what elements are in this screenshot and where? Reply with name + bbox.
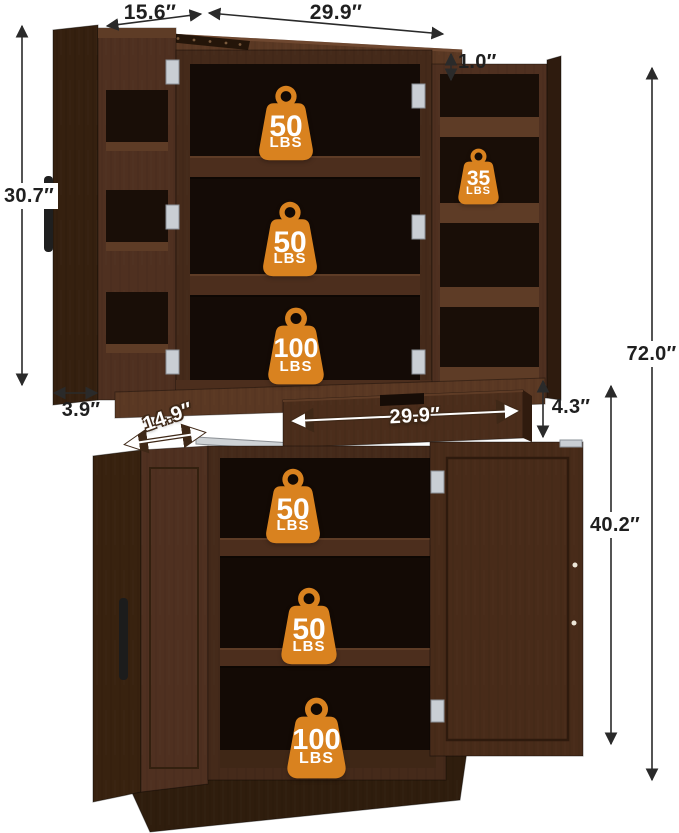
weight-badge-upper-shelf-3: 100 LBS [256, 306, 336, 386]
dimension-label-lower-height: 40.2″ [586, 512, 644, 538]
upper-right-door [432, 56, 561, 400]
dimension-label-drawer-height: 4.3″ [541, 396, 601, 418]
weight-unit: LBS [450, 186, 507, 197]
weight-badge-lower-shelf-3: 100 LBS [274, 696, 359, 780]
dimension-label-upper-side-depth: 3.9″ [51, 399, 111, 421]
handle-screw-dot [573, 563, 578, 568]
dimension-label-top-overhang: 1.0″ [458, 51, 518, 73]
dimension-label-drawer-width: 29.9″ [375, 404, 456, 428]
weight-unit: LBS [255, 518, 331, 533]
weight-unit: LBS [248, 135, 324, 150]
door-handle [119, 598, 128, 680]
weight-badge-lower-shelf-1: 50 LBS [255, 467, 331, 545]
weight-unit: LBS [252, 251, 328, 266]
handle-screw-dot [572, 621, 577, 626]
weight-badge-upper-shelf-1: 50 LBS [248, 84, 324, 162]
weight-unit: LBS [274, 751, 359, 767]
dimension-label-top-width: 29.9″ [296, 1, 376, 24]
metal-bracket-icon [560, 440, 582, 447]
dimension-label-top-depth: 15.6″ [110, 1, 190, 24]
weight-unit: LBS [270, 639, 348, 654]
dimension-label-overall-height: 72.0″ [624, 341, 679, 367]
weight-badge-door-shelf: 35 LBS [450, 147, 507, 206]
dimension-label-upper-height: 30.7″ [0, 183, 58, 209]
lower-right-door [430, 440, 583, 756]
weight-badge-upper-shelf-2: 50 LBS [252, 200, 328, 278]
upper-left-door [44, 25, 176, 405]
door-shelf-cubbies [440, 74, 539, 387]
door-shelf-cubbies [106, 90, 168, 353]
weight-unit: LBS [256, 359, 336, 374]
weight-badge-lower-shelf-2: 50 LBS [270, 586, 348, 666]
product-dimension-diagram: 15.6″ 29.9″ 1.0″ 30.7″ 3.9″ 14.9″ 29.9″ … [0, 0, 679, 833]
lower-left-door [93, 446, 208, 802]
